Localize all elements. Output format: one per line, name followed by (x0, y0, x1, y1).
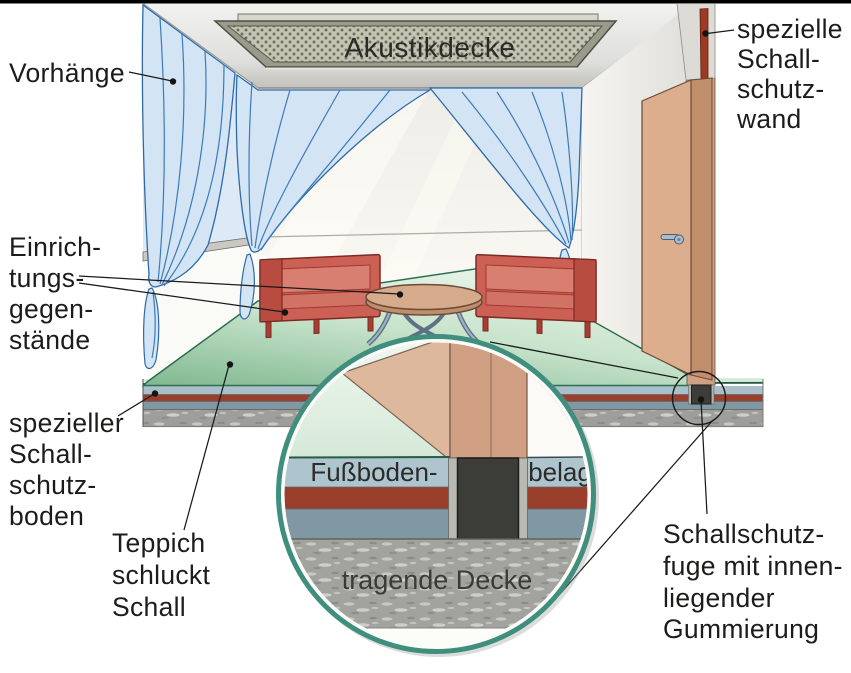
svg-text:spezielle: spezielle (737, 14, 843, 44)
svg-text:Schallschutz-: Schallschutz- (663, 519, 825, 549)
mag-label-floor-covering-left: Fußboden- (310, 457, 437, 487)
label-furnishings: Einrich- tungs- gegen- stände (9, 232, 101, 355)
door (642, 78, 712, 380)
svg-text:Schall: Schall (112, 592, 186, 622)
svg-text:schutz-: schutz- (9, 470, 97, 500)
svg-text:stände: stände (9, 325, 90, 355)
svg-text:schluckt: schluckt (112, 560, 210, 590)
svg-text:spezieller: spezieller (9, 408, 124, 438)
svg-text:Teppich: Teppich (112, 528, 205, 558)
schallschutz-diagram: Akustikdecke (0, 0, 851, 673)
label-joint: Schallschutz- fuge mit innen- liegender … (663, 519, 843, 644)
mag-layer-soundproof (280, 487, 596, 509)
top-border (0, 0, 851, 4)
svg-text:schutz-: schutz- (737, 74, 825, 104)
mag-joint (458, 458, 519, 539)
svg-text:liegender: liegender (663, 583, 775, 613)
label-carpet: Teppich schluckt Schall (112, 528, 210, 622)
svg-text:fuge mit innen-: fuge mit innen- (663, 551, 843, 581)
acoustic-ceiling-label: Akustikdecke (345, 32, 516, 63)
svg-text:Schall-: Schall- (9, 439, 92, 469)
svg-text:boden: boden (9, 501, 84, 531)
mag-rubber-left (449, 458, 458, 539)
mag-layer-screed (280, 509, 596, 539)
svg-text:gegen-: gegen- (9, 294, 93, 324)
svg-text:Einrich-: Einrich- (9, 232, 101, 262)
soundproof-wall-layer (700, 9, 708, 80)
mag-label-slab: tragende Decke (342, 565, 533, 595)
mag-label-floor-covering-right: belag (528, 457, 592, 487)
label-soundproof-floor: spezieller Schall- schutz- boden (9, 408, 124, 531)
label-soundproof-wall: spezielle Schall- schutz- wand (736, 14, 843, 134)
diagram-canvas: Akustikdecke (0, 0, 851, 673)
svg-text:tungs-: tungs- (9, 263, 84, 293)
label-curtains: Vorhänge (9, 58, 125, 88)
mag-rubber-right (519, 458, 528, 539)
svg-text:Schall-: Schall- (737, 44, 820, 74)
svg-text:wand: wand (736, 104, 802, 134)
svg-text:Gummierung: Gummierung (663, 614, 819, 644)
acoustic-ceiling-panel: Akustikdecke (215, 14, 616, 69)
